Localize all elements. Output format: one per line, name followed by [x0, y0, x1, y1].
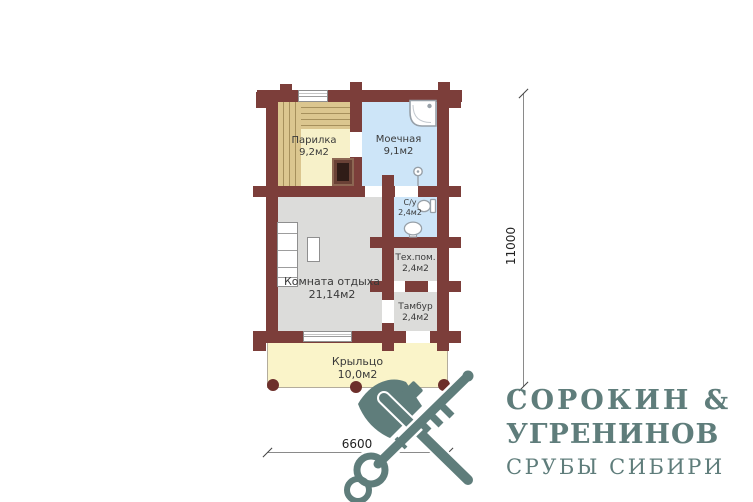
room-area: 9,2м2	[278, 147, 350, 159]
table-icon	[307, 237, 320, 262]
room-area: 2,4м2	[394, 313, 437, 324]
room-area: 2,4м2	[394, 208, 426, 218]
wall-tehpom-bottom-b	[405, 281, 428, 292]
log-end-stub	[256, 92, 266, 108]
log-end-stub	[350, 82, 362, 90]
log-end-stub	[280, 84, 292, 90]
wall-bottom-right	[430, 331, 461, 343]
room-name: Парилка	[278, 135, 350, 147]
shower-cabin-icon	[408, 99, 438, 128]
room-label-tehpom: Тех.пом. 2,4м2	[394, 253, 437, 275]
room-label-moechnaya: Моечная 9,1м2	[360, 134, 437, 158]
logo-text-block: СОРОКИН & УГРЕНИНОВ СРУБЫ СИБИРИ	[506, 387, 752, 478]
room-area: 2,4м2	[394, 264, 437, 275]
sink-icon	[402, 221, 424, 238]
wall-mid-left	[253, 186, 365, 197]
wall-left	[266, 90, 278, 343]
dimension-line-vertical	[523, 93, 524, 387]
room-label-tambur: Тамбур 2,4м2	[394, 302, 437, 324]
room-name: Комната отдыха	[278, 275, 386, 288]
room-area: 9,1м2	[360, 146, 437, 158]
sauna-bench-top-icon	[301, 102, 350, 129]
axe-and-key-icon	[344, 364, 516, 502]
logo-line-1: СОРОКИН &	[506, 387, 752, 414]
wall-mid-right	[418, 186, 461, 197]
room-label-parilka: Парилка 9,2м2	[278, 135, 350, 159]
logo-line-3: СРУБЫ СИБИРИ	[506, 457, 752, 478]
logo-line-2: УГРЕНИНОВ	[506, 421, 752, 448]
wall-inner-vertical-b	[382, 323, 394, 351]
room-label-su: С/у 2,4м2	[394, 198, 426, 218]
room-name: Моечная	[360, 134, 437, 146]
wall-right	[437, 90, 449, 351]
room-name: С/у	[394, 198, 426, 208]
floor-plan-canvas: Парилка 9,2м2 Моечная 9,1м2 С/у 2,4м2 Те…	[0, 0, 753, 502]
room-name: Тех.пом.	[394, 253, 437, 264]
wall-parilka-moechnaya-a	[350, 102, 362, 132]
shower-head-icon	[411, 166, 425, 187]
room-label-komnata: Комната отдыха 21,14м2	[278, 275, 386, 302]
log-end-stub	[449, 92, 461, 108]
wall-tehpom-bottom-c	[437, 281, 461, 292]
room-area: 21,14м2	[278, 288, 386, 301]
log-end-stub	[253, 331, 266, 351]
stove-icon	[332, 158, 354, 186]
log-end-stub	[438, 82, 450, 90]
dimension-height-label: 11000	[504, 224, 518, 268]
window-bottom	[303, 331, 352, 342]
window-top	[298, 90, 328, 102]
room-name: Тамбур	[394, 302, 437, 313]
